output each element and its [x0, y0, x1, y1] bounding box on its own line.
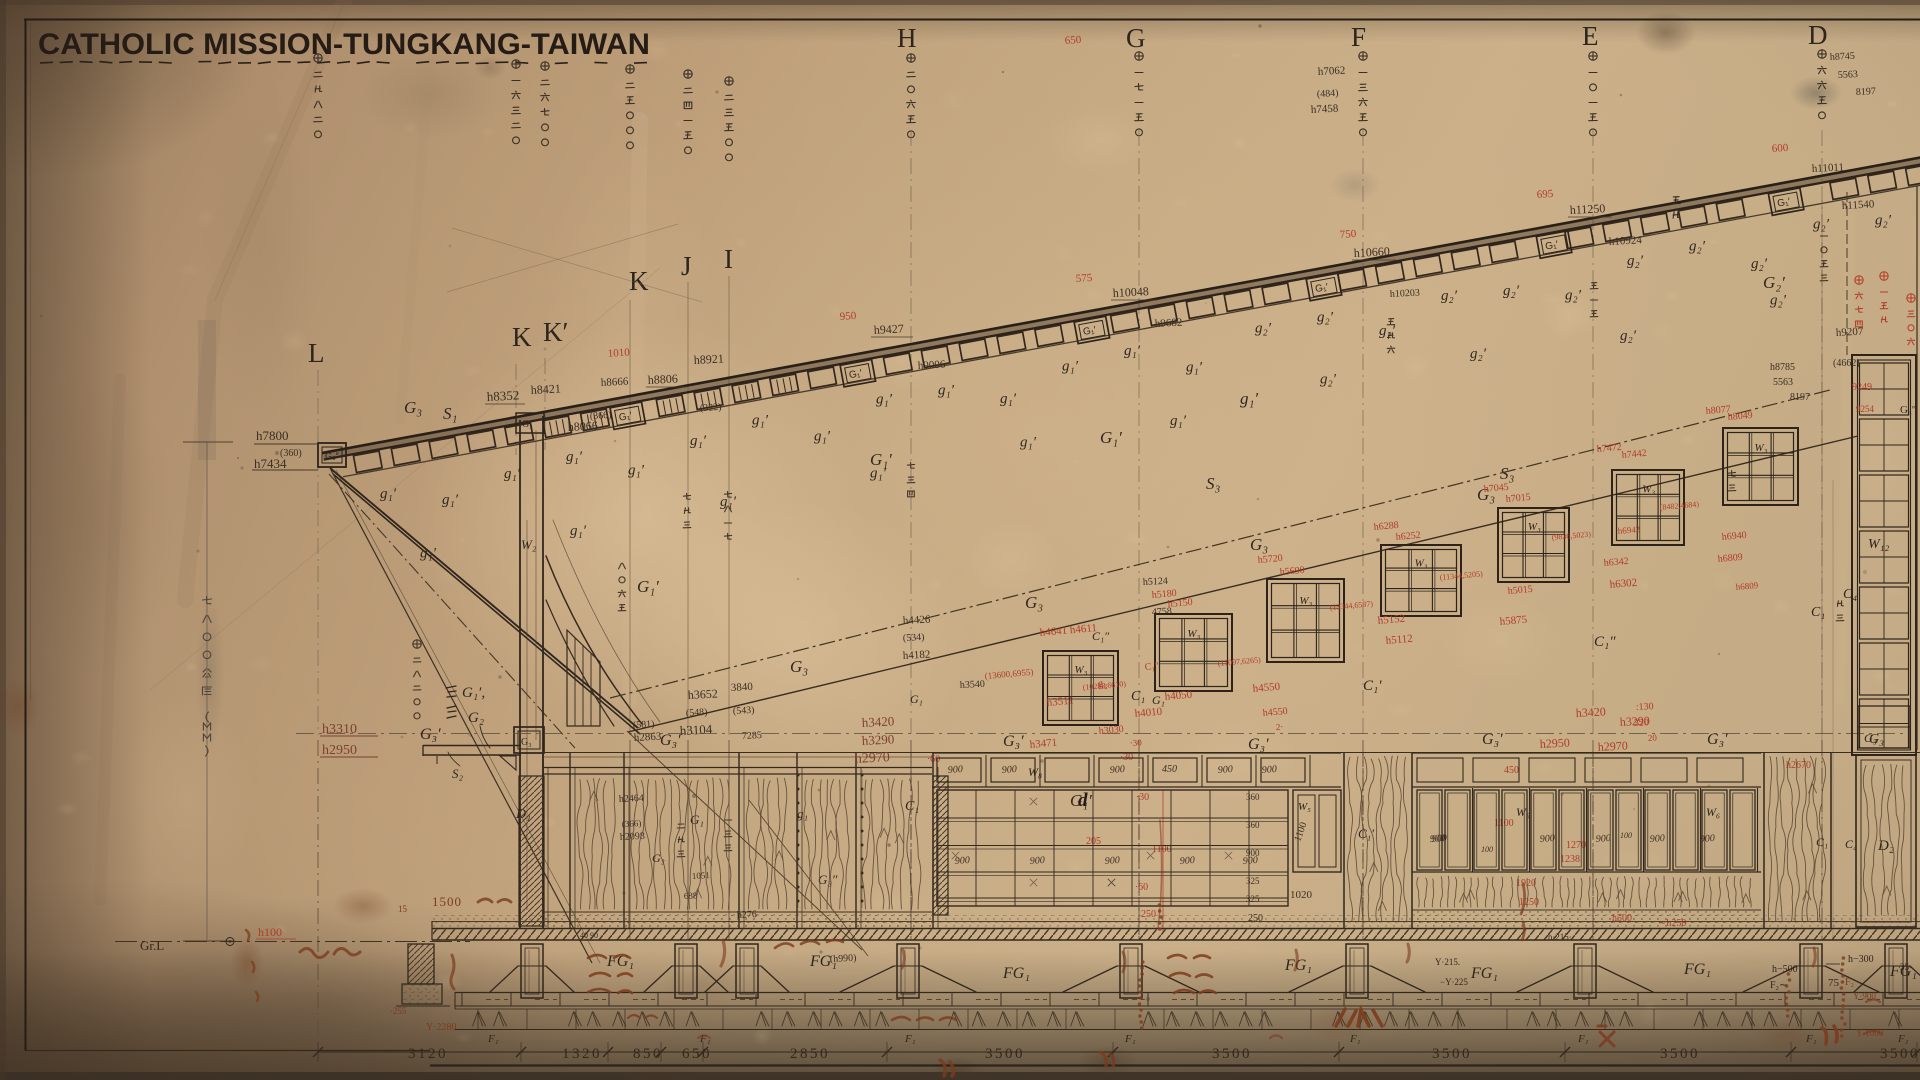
svg-text:h7062: h7062: [1318, 65, 1346, 78]
svg-text:900: 900: [1001, 764, 1017, 776]
svg-text:h5720: h5720: [1257, 553, 1283, 566]
svg-text:⋅h⋅215⋅: ⋅h⋅215⋅: [1545, 932, 1572, 942]
svg-text:FG₁: FG₁: [809, 953, 837, 970]
svg-text:Y⋅2280: Y⋅2280: [426, 1022, 456, 1033]
svg-text:g₂′: g₂′: [1751, 256, 1768, 272]
svg-text:h5112: h5112: [1385, 633, 1413, 647]
svg-text:(534): (534): [903, 632, 925, 644]
svg-text:g₁′: g₁′: [1062, 359, 1079, 375]
svg-text:G₁′: G₁′: [870, 450, 892, 469]
svg-text:W₃: W₃: [1415, 557, 1428, 569]
svg-text:h5875: h5875: [1499, 614, 1528, 628]
svg-text:h3420: h3420: [861, 713, 894, 730]
svg-text:1500: 1500: [432, 894, 462, 909]
svg-text:h5152: h5152: [1377, 613, 1405, 627]
svg-text:900: 900: [1649, 833, 1665, 845]
svg-text:900: 900: [1246, 848, 1260, 858]
svg-text:(484): (484): [1317, 88, 1339, 100]
svg-text:h7045: h7045: [1483, 482, 1509, 495]
svg-text:CATHOLIC MISSION-TUNGKANG-TAIW: CATHOLIC MISSION-TUNGKANG-TAIWAN: [38, 28, 650, 61]
svg-text:3840: 3840: [731, 681, 754, 694]
svg-text:FG₁: FG₁: [1470, 965, 1498, 982]
svg-text:I: I: [724, 244, 733, 274]
svg-text:5563: 5563: [1773, 377, 1793, 388]
svg-text:E: E: [1582, 21, 1599, 51]
svg-text:575: 575: [1075, 272, 1093, 285]
svg-text:g₂′: g₂′: [1565, 288, 1582, 304]
svg-text:⋅30: ⋅30: [1136, 792, 1149, 803]
svg-text:3500: 3500: [1660, 1046, 1700, 1062]
svg-text:h7015: h7015: [1505, 492, 1531, 505]
svg-text:900: 900: [1699, 833, 1715, 845]
svg-text:h7472: h7472: [1596, 442, 1622, 455]
svg-text:h5124: h5124: [1143, 576, 1169, 588]
svg-text:h3420: h3420: [1575, 704, 1606, 720]
svg-text:650: 650: [682, 1046, 712, 1062]
svg-text:900: 900: [1261, 764, 1277, 776]
svg-text:1320: 1320: [562, 1046, 602, 1062]
svg-text:75: 75: [1828, 977, 1840, 989]
svg-text:D: D: [1808, 20, 1828, 50]
svg-text:g₁′: g₁′: [1170, 413, 1187, 429]
svg-text:g₂′: g₂′: [1255, 321, 1272, 337]
svg-text:G₁: G₁: [910, 692, 923, 706]
svg-text:40 90: 40 90: [580, 931, 598, 940]
svg-text:G₃′: G₃′: [420, 726, 441, 743]
svg-text:900: 900: [1595, 833, 1611, 845]
svg-text:1250: 1250: [1519, 897, 1539, 908]
svg-text:g₂′: g₂′: [1379, 323, 1396, 339]
svg-text:C₄: C₄: [1843, 587, 1857, 602]
svg-text:900: 900: [1539, 833, 1555, 845]
svg-text:360: 360: [1246, 792, 1260, 802]
svg-text:g₁′: g₁′: [1124, 343, 1141, 359]
svg-text:h9427: h9427: [873, 321, 904, 337]
svg-text:h5690: h5690: [1279, 565, 1305, 578]
svg-text:h11011: h11011: [1812, 161, 1845, 175]
svg-text:3120: 3120: [408, 1046, 448, 1062]
svg-text:950: 950: [839, 310, 857, 323]
svg-text:650: 650: [1064, 34, 1082, 47]
svg-text:⋅60: ⋅60: [1135, 882, 1148, 893]
svg-text:g₁′: g₁′: [814, 429, 831, 445]
svg-text:g₂′: g₂′: [1470, 346, 1487, 362]
svg-text:G₁′: G₁′: [637, 577, 659, 596]
svg-text:W₃: W₃: [1642, 484, 1655, 496]
svg-text:h6942: h6942: [1617, 524, 1640, 536]
svg-text:Y⋅1000: Y⋅1000: [1856, 1028, 1884, 1038]
svg-text:G₁′: G₁′: [1544, 239, 1559, 252]
svg-text:−Y⋅225: −Y⋅225: [1440, 977, 1468, 987]
svg-text:G₃′: G₃′: [1707, 731, 1728, 748]
svg-text:FG₁: FG₁: [1683, 961, 1711, 978]
svg-text:h10203: h10203: [1390, 287, 1421, 300]
svg-text:h9207: h9207: [1836, 326, 1865, 339]
svg-text:L: L: [308, 338, 325, 368]
svg-text:20: 20: [1648, 733, 1658, 743]
svg-text:g₂′: g₂′: [1320, 371, 1337, 387]
svg-text:g₁: g₁: [797, 806, 808, 821]
svg-text:FG₁: FG₁: [1002, 965, 1030, 982]
svg-text:W₆: W₆: [1706, 805, 1720, 819]
svg-text:g₂′: g₂′: [1689, 238, 1706, 254]
svg-text:g₁′: g₁′: [628, 463, 645, 479]
svg-text:h10660: h10660: [1353, 244, 1390, 260]
svg-text:(581): (581): [633, 719, 655, 731]
svg-text:Y⋅215.: Y⋅215.: [1435, 957, 1460, 967]
svg-text:h8745: h8745: [1830, 51, 1856, 63]
svg-text:G₁′,: G₁′,: [462, 685, 485, 701]
svg-text:(366): (366): [590, 410, 612, 422]
svg-text:1270: 1270: [1566, 840, 1586, 851]
svg-text:h4550: h4550: [1262, 706, 1288, 719]
svg-text:1100: 1100: [1494, 818, 1514, 829]
svg-text:8197: 8197: [1856, 86, 1877, 98]
svg-text:h−500: h−500: [1772, 964, 1798, 975]
svg-text:h5015: h5015: [1507, 584, 1533, 597]
svg-text:1238: 1238: [1560, 854, 1580, 865]
svg-text:g₂′: g₂′: [1503, 283, 1520, 299]
svg-text:100: 100: [1620, 831, 1632, 840]
svg-text:600: 600: [1771, 142, 1789, 155]
svg-text:h2950: h2950: [1539, 735, 1570, 751]
svg-text:750: 750: [1339, 228, 1357, 241]
svg-text:h−300: h−300: [1848, 954, 1874, 965]
svg-text:(322): (322): [700, 402, 722, 414]
svg-text:K′: K′: [543, 317, 568, 347]
svg-text:g₁′: g₁′: [690, 433, 707, 449]
svg-text:F₁: F₁: [487, 1033, 499, 1045]
svg-text:h6809: h6809: [1717, 552, 1743, 565]
svg-text:15: 15: [398, 904, 408, 914]
svg-text:S₂: S₂: [452, 766, 464, 781]
svg-text:⋅255: ⋅255: [390, 1006, 407, 1016]
svg-text:W₈: W₈: [1028, 765, 1042, 779]
svg-text:7285: 7285: [742, 730, 763, 742]
svg-text:W₃: W₃: [1528, 521, 1541, 533]
svg-text:h6288: h6288: [1373, 520, 1399, 533]
svg-text:h3511: h3511: [1046, 695, 1074, 709]
svg-text:1920: 1920: [1516, 878, 1536, 889]
svg-text:W₃: W₃: [1075, 664, 1088, 676]
svg-text:h8049: h8049: [1727, 410, 1753, 423]
svg-text::130: :130: [1636, 701, 1654, 713]
svg-text:h11250: h11250: [1569, 201, 1605, 217]
svg-text:35: 35: [1900, 962, 1910, 972]
svg-text:h7434: h7434: [254, 456, 287, 471]
svg-text:(4662): (4662): [1833, 358, 1860, 369]
svg-text:g₁′: g₁′: [876, 391, 893, 407]
svg-text:C₁″: C₁″: [1144, 661, 1159, 673]
svg-text:W₁₂: W₁₂: [1868, 537, 1890, 552]
svg-text:g₁′: g₁′: [1000, 391, 1017, 407]
svg-text:G₃″: G₃″: [818, 872, 838, 887]
svg-text:9254: 9254: [1856, 404, 1875, 414]
svg-text:g₁′: g₁′: [752, 412, 769, 428]
svg-text:g₂′: g₂′: [1620, 328, 1637, 344]
svg-text:F₂: F₂: [1845, 977, 1854, 988]
svg-text:900: 900: [1109, 764, 1125, 776]
svg-text:h4050: h4050: [1164, 689, 1193, 703]
svg-text:C₁″: C₁″: [1594, 634, 1616, 650]
svg-text:g₂′: g₂′: [1441, 288, 1458, 304]
svg-text:D₂: D₂: [1877, 838, 1894, 854]
svg-text:5563: 5563: [1838, 69, 1859, 81]
svg-text:g₁′: g₁′: [504, 466, 521, 482]
svg-text:d: d: [1078, 790, 1088, 811]
svg-text:360: 360: [1246, 820, 1260, 830]
svg-text:G₃: G₃: [1250, 535, 1268, 554]
svg-text:3500: 3500: [1880, 1046, 1920, 1062]
svg-text:2850: 2850: [790, 1046, 830, 1062]
svg-text:C₁″: C₁″: [1092, 629, 1110, 643]
svg-text:G₃″: G₃″: [325, 451, 340, 461]
svg-text:900: 900: [1431, 833, 1447, 845]
svg-text:g₁′: g₁′: [938, 383, 955, 399]
svg-text:G₃: G₃: [1869, 732, 1884, 747]
svg-text:h6342: h6342: [1603, 556, 1629, 569]
svg-text:g₁′: g₁′: [720, 494, 737, 510]
svg-text:C₁: C₁: [1131, 689, 1145, 704]
svg-text:h8806: h8806: [647, 371, 678, 387]
svg-text:h8785: h8785: [1770, 362, 1795, 373]
svg-text:h3471: h3471: [1029, 737, 1057, 751]
svg-text:G₁′: G₁′: [1100, 428, 1122, 447]
svg-text:900: 900: [1029, 855, 1045, 867]
svg-text:h6302: h6302: [1609, 577, 1637, 591]
svg-text:G₃: G₃: [522, 419, 533, 430]
svg-text:325: 325: [1246, 876, 1260, 886]
svg-text:Y⋅900: Y⋅900: [1853, 991, 1876, 1001]
svg-text:F: F: [1351, 22, 1366, 52]
svg-text:h6252: h6252: [1395, 530, 1421, 543]
svg-text:h3030: h3030: [1098, 724, 1124, 737]
svg-text:h7458: h7458: [1311, 103, 1340, 116]
svg-text:g₁′: g₁′: [566, 449, 583, 465]
svg-text:G₃′: G₃′: [1482, 731, 1503, 748]
svg-text:3500: 3500: [1212, 1046, 1252, 1062]
svg-text:G₁′: G₁′: [1776, 196, 1791, 209]
svg-text:g₁′: g₁′: [570, 523, 587, 539]
svg-text:h10924: h10924: [1609, 234, 1643, 248]
svg-text:S₃: S₃: [1206, 474, 1221, 493]
svg-text:G₁: G₁: [1152, 693, 1165, 707]
svg-text:G₃: G₃: [790, 657, 808, 676]
svg-text:8197: 8197: [1790, 392, 1810, 403]
svg-text:W₆: W₆: [1516, 805, 1530, 819]
svg-text:g₁′: g₁′: [1240, 389, 1258, 408]
svg-text:F₂∼: F₂∼: [1770, 980, 1787, 991]
svg-text:G₁′: G₁′: [1314, 282, 1329, 295]
svg-text:g₁′: g₁′: [442, 492, 459, 508]
svg-text:900: 900: [1179, 855, 1195, 867]
svg-text:G₂: G₂: [468, 710, 484, 726]
svg-text:h2950: h2950: [322, 743, 357, 758]
svg-text:g₁′: g₁′: [1186, 359, 1203, 375]
svg-text:450: 450: [1504, 765, 1519, 776]
svg-text:g₂′: g₂′: [1627, 253, 1644, 269]
svg-text:G₃: G₃: [1025, 593, 1043, 612]
svg-text:h6809: h6809: [1735, 580, 1759, 592]
svg-text:h4010: h4010: [1134, 706, 1163, 720]
svg-text:h7800: h7800: [256, 428, 289, 443]
svg-text:h3310: h3310: [322, 722, 357, 737]
svg-text:⋅30: ⋅30: [1130, 737, 1143, 748]
svg-text:W₅: W₅: [1298, 801, 1311, 813]
svg-text:F₁: F₁: [1897, 1033, 1909, 1045]
svg-text:9249: 9249: [1852, 382, 1872, 393]
svg-text:h10048: h10048: [1112, 284, 1149, 300]
svg-text:F₁: F₁: [904, 1033, 916, 1045]
svg-text:h9682: h9682: [1155, 317, 1183, 330]
svg-text:h3290: h3290: [861, 731, 894, 748]
svg-text:h8921: h8921: [693, 351, 724, 367]
svg-text:G₁′: G₁′: [618, 411, 633, 424]
svg-text:100: 100: [1481, 845, 1493, 854]
svg-text:695: 695: [1536, 188, 1554, 201]
svg-text:1010: 1010: [607, 346, 630, 360]
svg-text:3500: 3500: [985, 1046, 1025, 1062]
svg-text:h5150: h5150: [1167, 597, 1193, 610]
svg-text:G₁′: G₁′: [1082, 325, 1097, 338]
svg-text:W₃: W₃: [1755, 442, 1768, 454]
svg-text:h8352: h8352: [486, 387, 519, 404]
svg-text:h9006: h9006: [918, 359, 947, 372]
svg-text:g₁′: g₁′: [1020, 435, 1037, 451]
svg-text:1020: 1020: [1290, 889, 1313, 901]
svg-text:h2670: h2670: [1786, 760, 1811, 771]
svg-text:g₂′: g₂′: [1875, 212, 1892, 228]
svg-text:F₁: F₁: [1577, 1033, 1589, 1045]
svg-text:h4426: h4426: [903, 614, 932, 627]
svg-text:325: 325: [1246, 894, 1260, 904]
svg-text:W₃: W₃: [1299, 595, 1312, 607]
svg-text:C₁′: C₁′: [1363, 678, 1382, 694]
svg-text:g₁′: g₁′: [380, 486, 397, 502]
svg-text:F₁: F₁: [1805, 1033, 1817, 1045]
svg-text:h4550: h4550: [1252, 681, 1281, 695]
svg-text:G₂′: G₂′: [1763, 273, 1785, 292]
svg-text:h2970: h2970: [1597, 738, 1628, 754]
svg-text:850: 850: [633, 1046, 663, 1062]
svg-text:g₂′: g₂′: [1317, 310, 1334, 326]
svg-text:g₂′: g₂′: [1813, 216, 1830, 232]
svg-text:h3540: h3540: [960, 679, 986, 691]
svg-text:G₃′: G₃′: [660, 732, 681, 749]
svg-text:h8666: h8666: [601, 376, 630, 389]
svg-text:900: 900: [1217, 764, 1233, 776]
svg-text:G₃′: G₃′: [1248, 736, 1269, 753]
svg-text:h6940: h6940: [1721, 530, 1747, 543]
svg-text:g₂′: g₂′: [1770, 292, 1787, 308]
svg-text:K: K: [512, 322, 532, 352]
svg-text:G₃: G₃: [404, 398, 422, 417]
svg-text:320: 320: [1634, 717, 1650, 729]
svg-text:h3104: h3104: [679, 721, 713, 738]
svg-text:G₃″: G₃″: [1900, 404, 1916, 416]
svg-text:h2464: h2464: [619, 793, 645, 805]
svg-text:F₁: F₁: [1349, 1033, 1361, 1045]
svg-text:G₃′: G₃′: [1003, 733, 1024, 750]
svg-text:3500: 3500: [1432, 1046, 1472, 1062]
svg-text:S₃: S₃: [1500, 464, 1515, 483]
svg-text:h2970: h2970: [854, 750, 890, 767]
svg-text:W₂: W₂: [521, 537, 537, 552]
svg-text:900: 900: [947, 764, 963, 776]
svg-text:G₁′: G₁′: [848, 368, 863, 381]
svg-text:2⋅: 2⋅: [1276, 722, 1284, 732]
svg-text:W₃: W₃: [1187, 628, 1200, 640]
svg-text:900: 900: [1104, 855, 1120, 867]
svg-text:H: H: [897, 23, 917, 53]
svg-text:Gr.L: Gr.L: [140, 938, 164, 953]
svg-text:h3652: h3652: [687, 686, 718, 702]
svg-text:C₁: C₁: [1811, 605, 1825, 620]
svg-text:h8421: h8421: [530, 381, 561, 397]
svg-text:h7442: h7442: [1621, 448, 1647, 461]
svg-text:G₃: G₃: [521, 737, 532, 748]
svg-text:J: J: [681, 251, 692, 281]
svg-text:S₁: S₁: [443, 404, 457, 423]
svg-text:F₁: F₁: [1124, 1033, 1136, 1045]
svg-text:G: G: [1126, 23, 1146, 53]
svg-text:450: 450: [1162, 764, 1177, 775]
svg-text:h100: h100: [258, 925, 282, 939]
